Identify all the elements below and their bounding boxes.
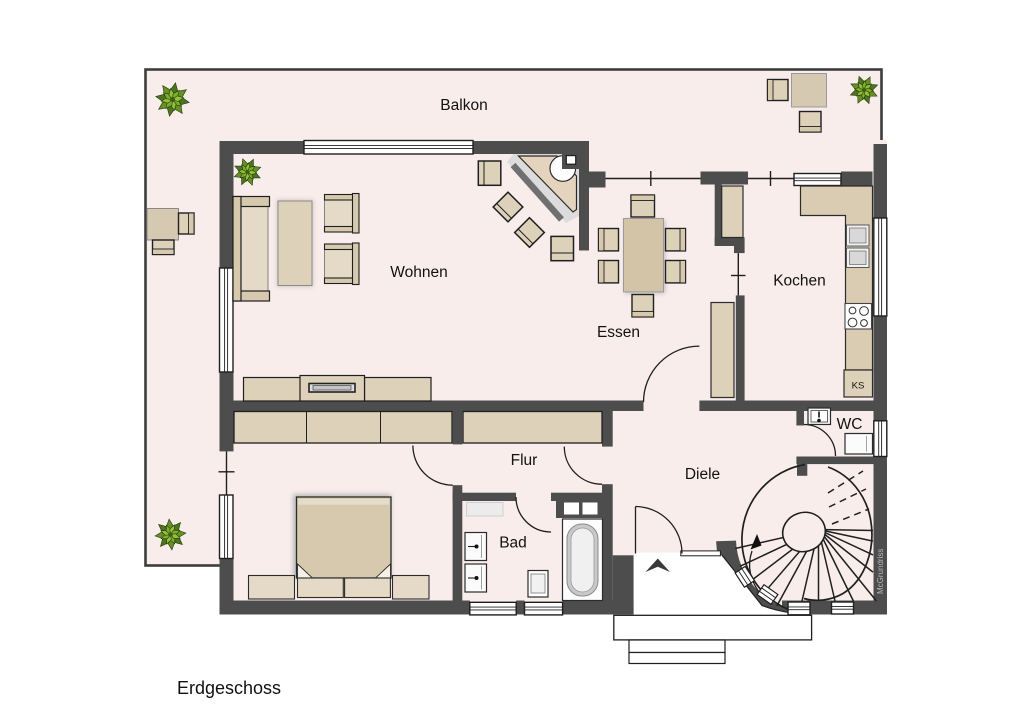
svg-text:Flur: Flur	[511, 452, 538, 469]
svg-text:Kochen: Kochen	[773, 273, 826, 290]
svg-text:Essen: Essen	[597, 324, 640, 341]
svg-text:WC: WC	[837, 416, 863, 433]
svg-text:Bad: Bad	[499, 535, 527, 552]
svg-text:Wohnen: Wohnen	[390, 264, 447, 281]
svg-text:KS: KS	[852, 381, 865, 392]
svg-text:McGrundriss: McGrundriss	[876, 549, 885, 594]
svg-text:Diele: Diele	[685, 466, 720, 483]
svg-text:Balkon: Balkon	[440, 97, 487, 114]
svg-text:Erdgeschoss: Erdgeschoss	[177, 678, 281, 698]
